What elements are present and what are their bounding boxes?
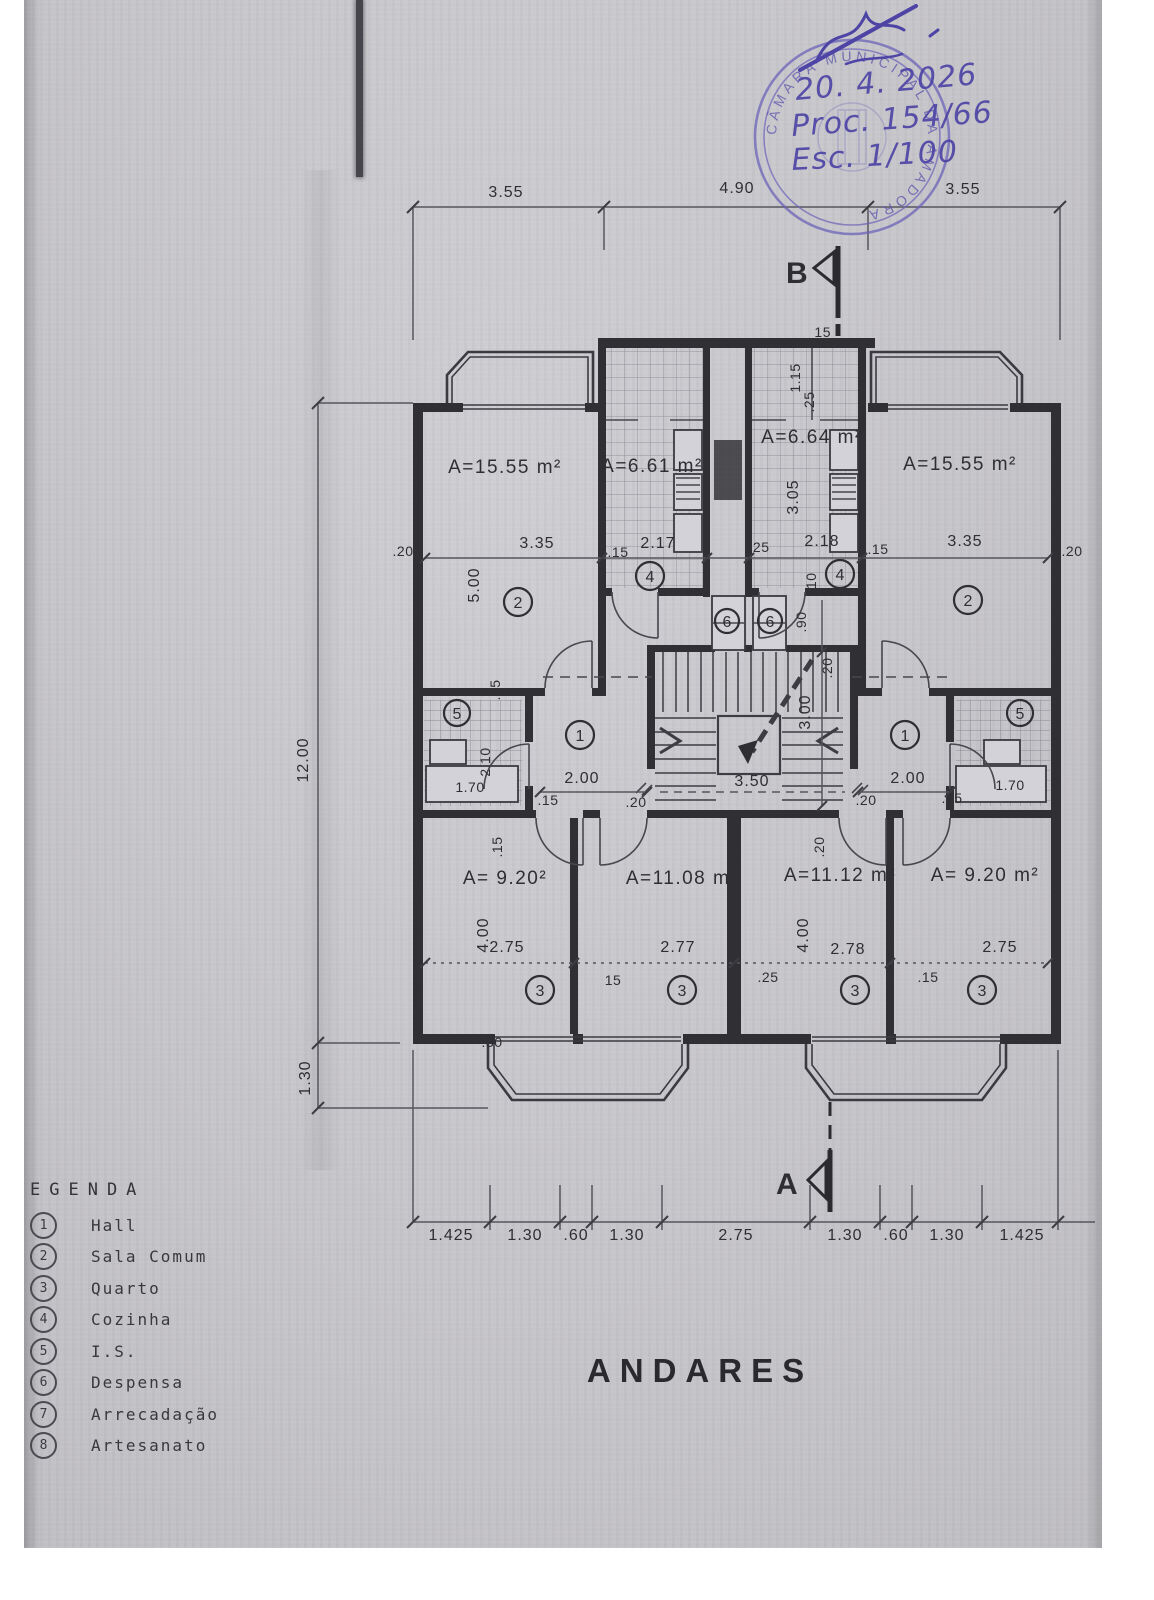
room-num-quarto-3: 3 <box>851 983 860 1000</box>
legend-label-sala-comum: Sala Comum <box>91 1247 207 1266</box>
dim-sala-right-w: 3.35 <box>947 533 982 550</box>
legend: EGENDA 1 Hall 2 Sala Comum 3 Quarto 4 Co… <box>30 1180 219 1466</box>
dim-bottom-3: .60 <box>563 1227 588 1244</box>
legend-item-cozinha: 4 Cozinha <box>30 1309 219 1331</box>
legend-num-3: 3 <box>30 1275 57 1302</box>
dim-qwall-15r: .15 <box>918 969 939 985</box>
legend-item-arrecadacao: 7 Arrecadação <box>30 1403 219 1425</box>
legend-label-hall: Hall <box>91 1216 138 1235</box>
legend-item-is: 5 I.S. <box>30 1340 219 1362</box>
area-sala-right: A=15.55 m² <box>903 454 1017 475</box>
area-quarto-3: A=11.12 m² <box>784 865 896 886</box>
dim-qwall-15: 15 <box>605 972 622 988</box>
legend-num-8: 8 <box>30 1432 57 1459</box>
dim-top-2: 4.90 <box>719 180 754 197</box>
dim-door20-right: .20 <box>856 792 877 808</box>
room-num-cozinha-right: 4 <box>836 567 845 584</box>
legend-label-cozinha: Cozinha <box>91 1310 172 1329</box>
legend-label-quarto: Quarto <box>91 1279 161 1298</box>
area-kitchen-right: A=6.64 m² <box>761 427 863 448</box>
dim-balc-wall: .25 <box>801 392 817 413</box>
legend-num-7: 7 <box>30 1401 57 1428</box>
dim-bath-d: 2.10 <box>477 747 493 776</box>
dim-bottom-1: 1.425 <box>428 1227 473 1244</box>
area-sala-left: A=15.55 m² <box>448 457 562 478</box>
legend-item-despensa: 6 Despensa <box>30 1372 219 1394</box>
dim-sala-h: 5.00 <box>466 567 483 602</box>
dim-w15-kitchenR: .15 <box>868 541 889 557</box>
scanned-floor-plan-page: 3.55 4.90 3.55 12.00 1.30 <box>0 0 1154 1600</box>
dim-q4-w: 2.75 <box>982 939 1017 956</box>
room-num-is-left: 5 <box>453 706 462 723</box>
dim-q2-w: 2.77 <box>660 939 695 956</box>
room-num-cozinha-left: 4 <box>646 569 655 586</box>
municipal-stamp: CÂMARA MUNICIPAL DA AMADORA 20. 4. 2026 … <box>755 6 994 234</box>
dim-q1-w: 2.75 <box>489 939 524 956</box>
dim-top-1: 3.55 <box>488 184 523 201</box>
legend-item-sala-comum: 2 Sala Comum <box>30 1246 219 1268</box>
dim-left-total: 12.00 <box>295 737 312 782</box>
room-num-quarto-2: 3 <box>678 983 687 1000</box>
legend-title: EGENDA <box>30 1180 219 1200</box>
room-num-despensa-left: 6 <box>723 614 732 631</box>
room-num-hall-left: 1 <box>576 728 585 745</box>
dim-bottom-5: 2.75 <box>718 1227 753 1244</box>
sheet-title: ANDARES <box>580 1352 820 1390</box>
legend-num-4: 4 <box>30 1306 57 1333</box>
section-label-a: A <box>776 1168 798 1201</box>
room-num-sala-left: 2 <box>514 595 523 612</box>
dim-door20-left: .20 <box>626 794 647 810</box>
room-num-quarto-1: 3 <box>536 983 545 1000</box>
dim-bottom-7: .60 <box>883 1227 908 1244</box>
room-num-sala-right: 2 <box>964 593 973 610</box>
dim-despensa-d: .90 <box>793 612 809 633</box>
dim-bottom-4: 1.30 <box>609 1227 644 1244</box>
legend-num-1: 1 <box>30 1212 57 1239</box>
dim-qwall-25: .25 <box>758 969 779 985</box>
dim-bottom-2: 1.30 <box>507 1227 542 1244</box>
section-label-b: B <box>786 257 808 290</box>
dim-left-balcony: 1.30 <box>297 1060 314 1095</box>
dim-w15-kitchenL: .15 <box>608 544 629 560</box>
bottom-dimension-line: 1.425 1.30 .60 1.30 2.75 1.30 .60 1.30 1… <box>407 1050 1095 1244</box>
legend-item-hall: 1 Hall <box>30 1214 219 1236</box>
dim-stair-top-wall: .20 <box>819 658 835 679</box>
dim-kitchen-left-w: 2.17 <box>640 535 675 552</box>
section-marker-a: A <box>776 1102 830 1212</box>
dim-top-3: 3.55 <box>945 181 980 198</box>
room-num-quarto-4: 3 <box>978 983 987 1000</box>
dim-hall-right-w: 2.00 <box>890 770 925 787</box>
dim-w30: .30 <box>482 1034 503 1050</box>
dim-hall-left-w: 2.00 <box>564 770 599 787</box>
dim-sala-wall-15: .15 <box>487 680 503 701</box>
dim-balc-w: 1.15 <box>787 363 803 392</box>
top-dimension-line: 3.55 4.90 3.55 <box>407 180 1066 340</box>
dim-w20-left: .20 <box>393 543 414 559</box>
dim-bottom-8: 1.30 <box>929 1227 964 1244</box>
legend-num-5: 5 <box>30 1338 57 1365</box>
area-kitchen-left: A=6.61 m² <box>601 456 703 477</box>
room-num-despensa-right: 6 <box>766 614 775 631</box>
legend-label-artesanato: Artesanato <box>91 1436 207 1455</box>
legend-item-artesanato: 8 Artesanato <box>30 1435 219 1457</box>
legend-num-2: 2 <box>30 1243 57 1270</box>
dim-bath-w-right: 1.70 <box>995 777 1024 793</box>
area-quarto-1: A= 9.20² <box>463 868 547 889</box>
dim-w10: .10 <box>803 573 819 594</box>
tiled-floors <box>424 348 1050 806</box>
section-marker-b: B 15 <box>786 246 838 340</box>
dim-bottom-6: 1.30 <box>827 1227 862 1244</box>
dim-b-wall: 15 <box>814 324 831 340</box>
room-num-hall-right: 1 <box>901 728 910 745</box>
dim-q-h-left: 4.00 <box>475 917 492 952</box>
area-quarto-2: A=11.08 m² <box>626 868 738 889</box>
legend-item-quarto: 3 Quarto <box>30 1277 219 1299</box>
dim-bath-w-left: 1.70 <box>455 779 484 795</box>
legend-num-6: 6 <box>30 1369 57 1396</box>
dim-stair-h: 3.00 <box>797 694 814 729</box>
dim-sala-left-w: 3.35 <box>519 535 554 552</box>
dim-kitchen-h: 3.05 <box>785 479 802 514</box>
dim-qwall-15-top: .15 <box>489 837 505 858</box>
dim-q3-w: 2.78 <box>830 941 865 958</box>
dim-hall15-left: .15 <box>538 792 559 808</box>
area-quarto-4: A= 9.20 m² <box>931 865 1039 886</box>
dim-stair-w: 3.50 <box>734 773 769 790</box>
legend-label-despensa: Despensa <box>91 1373 184 1392</box>
dim-bottom-9: 1.425 <box>999 1227 1044 1244</box>
legend-label-arrecadacao: Arrecadação <box>91 1405 219 1424</box>
dim-kitchen-right-w: 2.18 <box>804 533 839 550</box>
room-num-is-right: 5 <box>1016 706 1025 723</box>
dim-qwall-20-top: .20 <box>811 837 827 858</box>
dim-hall15-right: .15 <box>942 790 963 806</box>
legend-label-is: I.S. <box>91 1342 138 1361</box>
dim-w25-kitchenR: .25 <box>749 539 770 555</box>
dim-q-h-right: 4.00 <box>795 917 812 952</box>
dim-w20-right: .20 <box>1062 543 1083 559</box>
